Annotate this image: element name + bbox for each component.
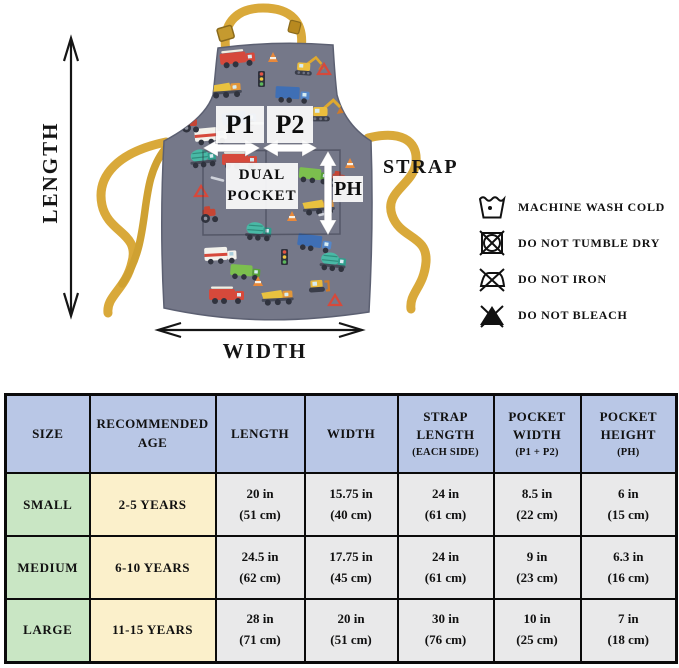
care-label: DO NOT TUMBLE DRY [518, 236, 660, 251]
header-row: SIZE RECOMMENDED AGE LENGTH WIDTH STRAP … [6, 395, 677, 474]
strap-buckle [217, 25, 235, 42]
care-label: DO NOT BLEACH [518, 308, 628, 323]
care-row-tumble-dry: DO NOT TUMBLE DRY [477, 228, 665, 258]
pocket-height-cell: 7 in(18 cm) [581, 599, 677, 662]
apron-diagram: LENGTH WIDTH STRAP P1 P2 DUAL POCKET PH … [0, 0, 679, 392]
size-cell: LARGE [6, 599, 90, 662]
col-header-strap-length: STRAP LENGTH (EACH SIDE) [398, 395, 494, 474]
dual-pocket-line2: POCKET [227, 186, 296, 207]
care-label: MACHINE WASH COLD [518, 200, 665, 215]
width-label: WIDTH [195, 339, 335, 364]
length-label: LENGTH [38, 110, 63, 235]
do-not-iron-icon [477, 264, 507, 294]
do-not-bleach-icon [477, 300, 507, 330]
strap-slider [288, 20, 302, 34]
strap-length-cell: 24 in(61 cm) [398, 473, 494, 536]
age-cell: 6-10 YEARS [90, 536, 216, 599]
table-row-medium: MEDIUM 6-10 YEARS 24.5 in(62 cm) 17.75 i… [6, 536, 677, 599]
do-not-tumble-dry-icon [477, 228, 507, 258]
waist-tie-left [101, 142, 166, 313]
table-row-small: SMALL 2-5 YEARS 20 in(51 cm) 15.75 in(40… [6, 473, 677, 536]
strap-label: STRAP [383, 156, 459, 179]
size-chart-table: SIZE RECOMMENDED AGE LENGTH WIDTH STRAP … [4, 393, 678, 664]
product-size-guide-image: LENGTH WIDTH STRAP P1 P2 DUAL POCKET PH … [0, 0, 679, 668]
width-arrow [158, 323, 362, 337]
pocket-width-cell: 9 in(23 cm) [494, 536, 581, 599]
strap-length-cell: 24 in(61 cm) [398, 536, 494, 599]
machine-wash-cold-icon [477, 192, 507, 222]
strap-length-cell: 30 in(76 cm) [398, 599, 494, 662]
care-row-bleach: DO NOT BLEACH [477, 300, 665, 330]
col-header-width: WIDTH [305, 395, 398, 474]
col-header-length: LENGTH [216, 395, 305, 474]
pocket-width-cell: 8.5 in(22 cm) [494, 473, 581, 536]
pocket-height-cell: 6.3 in(16 cm) [581, 536, 677, 599]
care-instructions: MACHINE WASH COLD DO NOT TUMBLE DRY DO N… [477, 192, 665, 330]
length-cell: 20 in(51 cm) [216, 473, 305, 536]
pocket-height-cell: 6 in(15 cm) [581, 473, 677, 536]
width-cell: 15.75 in(40 cm) [305, 473, 398, 536]
length-cell: 28 in(71 cm) [216, 599, 305, 662]
care-row-machine-wash: MACHINE WASH COLD [477, 192, 665, 222]
dual-pocket-line1: DUAL [239, 165, 286, 186]
length-arrow [64, 38, 78, 316]
col-header-pocket-height: POCKET HEIGHT (PH) [581, 395, 677, 474]
col-header-recommended-age: RECOMMENDED AGE [90, 395, 216, 474]
age-cell: 2-5 YEARS [90, 473, 216, 536]
pocket1-label: P1 [216, 106, 264, 143]
age-cell: 11-15 YEARS [90, 599, 216, 662]
pocket-width-cell: 10 in(25 cm) [494, 599, 581, 662]
size-cell: MEDIUM [6, 536, 90, 599]
table-row-large: LARGE 11-15 YEARS 28 in(71 cm) 20 in(51 … [6, 599, 677, 662]
col-header-pocket-width: POCKET WIDTH (P1 + P2) [494, 395, 581, 474]
col-header-size: SIZE [6, 395, 90, 474]
pocket2-label: P2 [267, 106, 313, 143]
width-cell: 20 in(51 cm) [305, 599, 398, 662]
care-label: DO NOT IRON [518, 272, 607, 287]
size-cell: SMALL [6, 473, 90, 536]
width-cell: 17.75 in(45 cm) [305, 536, 398, 599]
length-cell: 24.5 in(62 cm) [216, 536, 305, 599]
pocket-height-label: PH [333, 176, 363, 202]
dual-pocket-label: DUAL POCKET [226, 163, 298, 209]
care-row-iron: DO NOT IRON [477, 264, 665, 294]
